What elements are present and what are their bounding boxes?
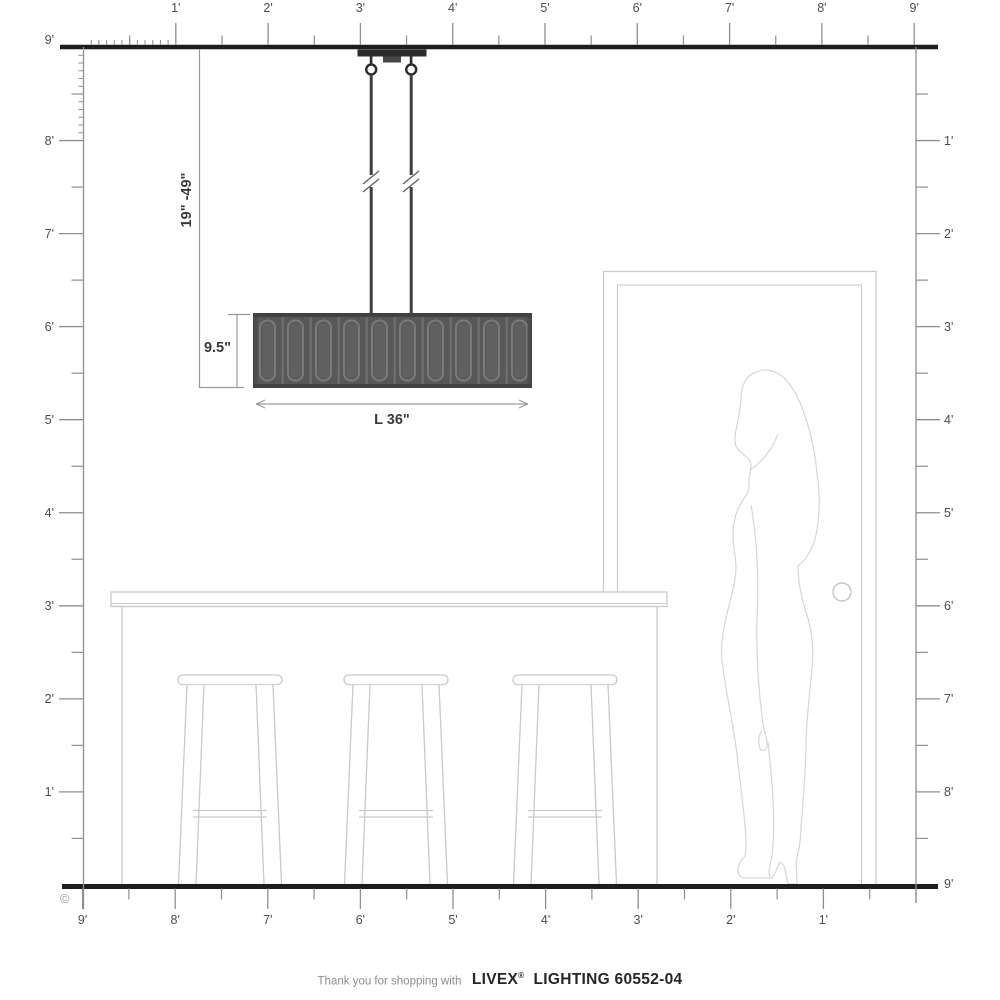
door-knob — [833, 583, 851, 601]
ruler-left-label-3: 6' — [24, 320, 54, 334]
ruler-bottom-label-2: 7' — [263, 913, 272, 927]
ruler-right-label-2: 3' — [944, 320, 953, 334]
ruler-top-label-2: 3' — [356, 1, 365, 15]
ruler-left-label-0: 9' — [24, 33, 54, 47]
ruler-bottom-label-3: 6' — [356, 913, 365, 927]
ruler-ticks-right — [916, 94, 940, 838]
ruler-right-label-5: 6' — [944, 599, 953, 613]
registered-mark: ® — [518, 971, 524, 980]
ruler-right-label-7: 8' — [944, 785, 953, 799]
hang-range-label: 19" -49" — [179, 140, 195, 260]
ruler-left-label-7: 2' — [24, 692, 54, 706]
hanging-ring — [406, 65, 416, 75]
ruler-top-label-0: 1' — [171, 1, 180, 15]
ruler-top-label-6: 7' — [725, 1, 734, 15]
ceiling-canopy — [358, 50, 427, 57]
ruler-ticks-bottom — [83, 889, 916, 910]
ruler-left-label-5: 4' — [24, 506, 54, 520]
ruler-left-label-8: 1' — [24, 785, 54, 799]
product-dimension-diagram: 19" -49" 9.5" L 36" 1'2'3'4'5'6'7'8'9'9'… — [0, 0, 1000, 1000]
footer-text: Thank you for shopping with LIVEX® LIGHT… — [0, 971, 1000, 989]
ruler-right-label-4: 5' — [944, 506, 953, 520]
hanging-rod — [370, 75, 373, 315]
ruler-bottom-label-7: 2' — [726, 913, 735, 927]
ruler-bottom-label-0: 9' — [78, 913, 87, 927]
footer-thanks: Thank you for shopping with — [318, 975, 462, 987]
ruler-bottom-label-8: 1' — [819, 913, 828, 927]
counter-top — [111, 592, 667, 607]
ruler-left-label-4: 5' — [24, 413, 54, 427]
copyright-symbol: © — [60, 892, 70, 906]
ruler-right-label-6: 7' — [944, 692, 953, 706]
ruler-top-label-8: 9' — [910, 1, 919, 15]
ruler-top-label-7: 8' — [817, 1, 826, 15]
hanging-rod — [410, 75, 413, 315]
ruler-left-label-1: 8' — [24, 134, 54, 148]
ruler-top-label-3: 4' — [448, 1, 457, 15]
ruler-right-label-8: 9' — [944, 877, 953, 891]
ruler-right-label-0: 1' — [944, 134, 953, 148]
ruler-top-label-4: 5' — [540, 1, 549, 15]
ruler-ticks-top — [91, 23, 914, 45]
ruler-right-label-1: 2' — [944, 227, 953, 241]
drum-shade — [254, 314, 532, 389]
ruler-right-label-3: 4' — [944, 413, 953, 427]
shade-height-label: 9.5" — [185, 340, 231, 356]
ruler-bottom-label-1: 8' — [171, 913, 180, 927]
ruler-top-label-5: 6' — [633, 1, 642, 15]
ruler-ticks-left — [59, 55, 84, 838]
scene-drawing — [0, 0, 1000, 1000]
ruler-bottom-label-5: 4' — [541, 913, 550, 927]
linear-pendant-fixture — [254, 50, 532, 389]
model-number: LIGHTING 60552-04 — [533, 971, 682, 988]
hanging-ring — [366, 65, 376, 75]
shade-length-label: L 36" — [332, 412, 452, 428]
woman-silhouette — [722, 370, 820, 884]
ruler-top-label-1: 2' — [263, 1, 272, 15]
ruler-bottom-label-4: 5' — [448, 913, 457, 927]
ruler-left-label-2: 7' — [24, 227, 54, 241]
ruler-left-label-6: 3' — [24, 599, 54, 613]
ruler-bottom-label-6: 3' — [634, 913, 643, 927]
brand-name: LIVEX — [472, 971, 518, 988]
bar-counter — [111, 592, 667, 885]
